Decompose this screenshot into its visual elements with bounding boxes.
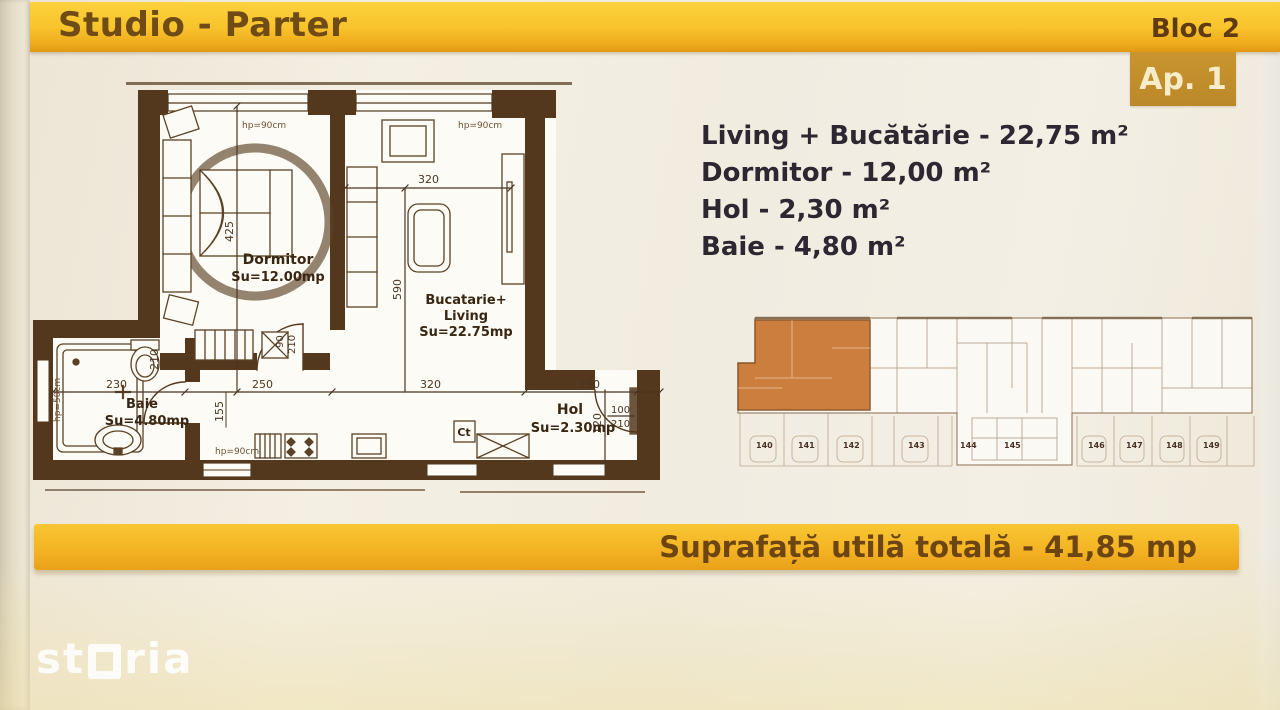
top-banner: Studio - Parter Bloc 2 (30, 2, 1280, 52)
parking-142: 142 (843, 441, 860, 450)
storia-watermark-st: st (36, 634, 85, 683)
room-label-living-1: Bucatarie+ (425, 293, 506, 308)
dim-dorm-height: 425 (223, 221, 236, 242)
parking-148: 148 (1166, 441, 1183, 450)
total-area-label: Suprafață utilă totală - 41,85 mp (659, 530, 1197, 564)
storia-watermark-ria: ria (124, 634, 193, 683)
window-label-1: hp=90cm (242, 121, 286, 131)
area-list-item-baie: Baie - 4,80 m² (701, 229, 1129, 266)
parking-141: 141 (798, 441, 815, 450)
dorm-door-width: 90 (275, 335, 286, 348)
bath-sink-icon (95, 425, 141, 455)
storia-square-o-icon (88, 644, 121, 679)
room-label-dormitor: Dormitor (243, 252, 314, 268)
entry-door-width: 100 (611, 405, 630, 416)
room-area-living: Su=22.75mp (419, 325, 512, 340)
parking-146: 146 (1088, 441, 1105, 450)
parking-144: 144 (960, 441, 977, 450)
highlighted-unit (738, 320, 870, 410)
dim-baie-height: 210 (148, 349, 161, 370)
boiler-label: Ct (457, 426, 470, 439)
dim-living-width-top: 320 (418, 173, 439, 186)
storia-watermark: stria (36, 634, 194, 683)
window-label-3: hp=90cm (215, 447, 259, 457)
area-list-item-living: Living + Bucătărie - 22,75 m² (701, 118, 1129, 155)
room-label-living-2: Living (444, 309, 488, 324)
apartment-badge: Ap. 1 (1130, 52, 1236, 106)
dim-155: 155 (213, 401, 226, 422)
room-label-baie: Baie (126, 397, 158, 412)
room-area-hol: Su=2.30mp (531, 421, 615, 436)
page-title: Studio - Parter (58, 5, 347, 45)
area-list-item-dormitor: Dormitor - 12,00 m² (701, 155, 1129, 192)
dim-baie-width: 230 (106, 378, 127, 391)
room-area-dormitor: Su=12.00mp (231, 270, 324, 285)
site-plan: 140 141 142 143 144 145 146 147 148 149 (722, 298, 1267, 483)
total-area-banner: Suprafață utilă totală - 41,85 mp (34, 524, 1239, 570)
dresser-icon (195, 330, 253, 360)
dim-hall-width: 250 (252, 378, 273, 391)
parking-149: 149 (1203, 441, 1220, 450)
dorm-door-height: 210 (287, 335, 298, 354)
dim-living-height: 590 (391, 279, 404, 300)
window-label-2: hp=90cm (458, 121, 502, 131)
window-label-shower: hp=50cm (53, 378, 63, 422)
tv-unit-icon (502, 154, 524, 284)
room-area-list: Living + Bucătărie - 22,75 m² Dormitor -… (701, 118, 1129, 266)
bloc-label: Bloc 2 (1151, 14, 1240, 44)
parking-143: 143 (908, 441, 925, 450)
area-list-item-hol: Hol - 2,30 m² (701, 192, 1129, 229)
parking-145: 145 (1004, 441, 1021, 450)
dim-hol-width: 190 (579, 378, 600, 391)
parking-140: 140 (756, 441, 773, 450)
photo-bottom-tint (0, 550, 1280, 710)
dim-kitchen-width: 320 (420, 378, 441, 391)
room-area-baie: Su=4.80mp (105, 414, 189, 429)
room-label-hol: Hol (557, 402, 583, 418)
parking-147: 147 (1126, 441, 1143, 450)
main-floor-plan: 230 250 320 190 425 590 320 155 120 210 … (30, 82, 670, 510)
